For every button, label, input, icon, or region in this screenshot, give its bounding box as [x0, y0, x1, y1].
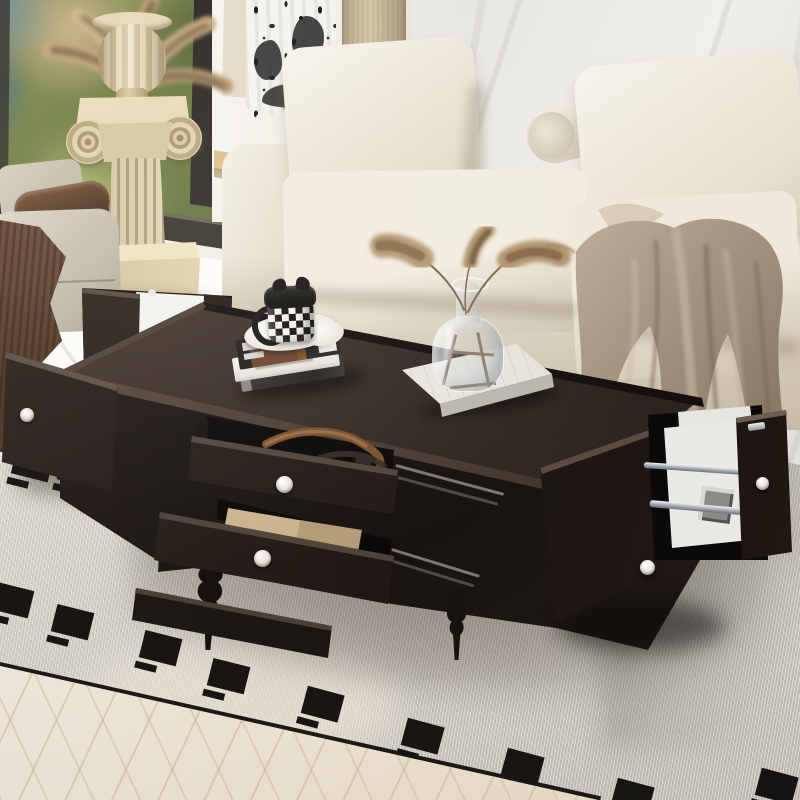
pampas-grass: [360, 206, 580, 336]
taupe-throw-blanket: [556, 192, 800, 440]
rug-square: [607, 778, 654, 800]
column-volute-right: [158, 116, 202, 160]
rack-knob: [756, 477, 769, 490]
rug-square: [751, 768, 798, 800]
table-leg-front-right: [444, 588, 470, 660]
table-leg-front-left: [194, 558, 225, 651]
right-door-knob: [640, 560, 655, 575]
urn-body: [98, 24, 166, 94]
book-cover-label: [244, 351, 265, 360]
rug-square: [48, 604, 95, 653]
top-drawer-knob: [276, 476, 293, 493]
living-room-scene: [0, 0, 800, 800]
left-rack-bolt: [148, 289, 156, 297]
bottom-drawer-knob: [254, 550, 271, 567]
rug-square: [0, 582, 34, 631]
column-volute-left: [66, 120, 110, 164]
right-door-shadow: [556, 600, 726, 652]
leather-belt-in-drawer: [200, 414, 400, 478]
urn-foot: [116, 88, 148, 114]
left-door-knob: [20, 408, 34, 422]
